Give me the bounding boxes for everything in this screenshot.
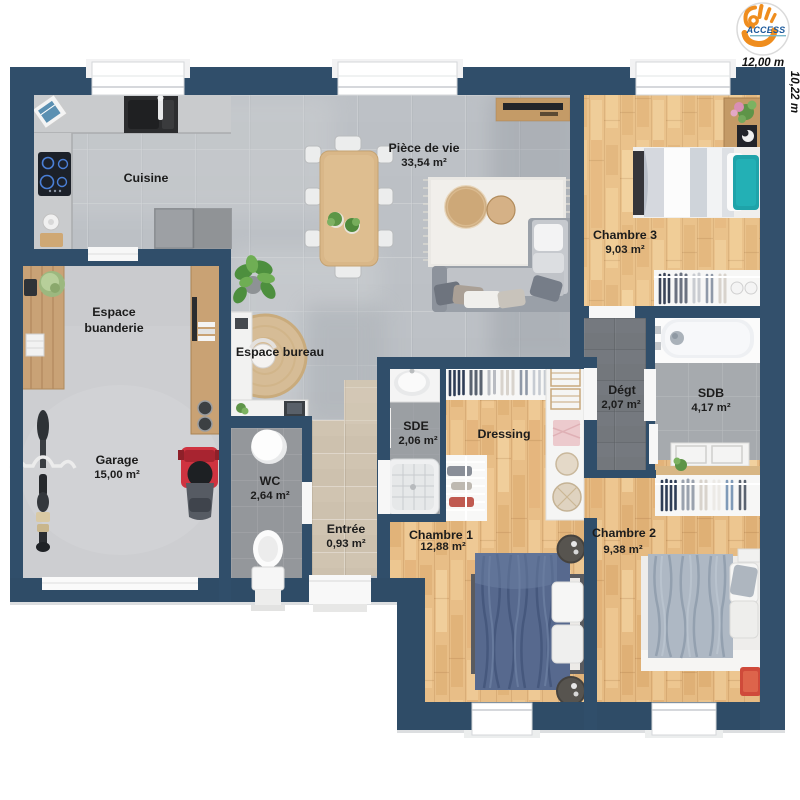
svg-text:2,06 m²: 2,06 m²: [398, 435, 437, 447]
svg-text:9,03 m²: 9,03 m²: [605, 244, 644, 256]
svg-text:Espace: Espace: [92, 305, 136, 319]
svg-text:15,00 m²: 15,00 m²: [94, 469, 140, 481]
svg-text:WC: WC: [260, 474, 281, 488]
svg-text:Chambre 2: Chambre 2: [592, 526, 656, 540]
svg-text:SDE: SDE: [403, 419, 428, 433]
svg-text:ACCESS: ACCESS: [746, 25, 786, 35]
svg-text:12,88 m²: 12,88 m²: [420, 541, 466, 553]
svg-text:Espace bureau: Espace bureau: [236, 345, 324, 359]
svg-text:buanderie: buanderie: [84, 321, 143, 335]
svg-text:Pièce de vie: Pièce de vie: [389, 141, 460, 155]
svg-text:2,07 m²: 2,07 m²: [601, 399, 640, 411]
svg-text:Garage: Garage: [96, 453, 139, 467]
svg-text:Cuisine: Cuisine: [124, 171, 169, 185]
svg-text:Entrée: Entrée: [327, 522, 366, 536]
svg-text:9,38 m²: 9,38 m²: [603, 544, 642, 556]
svg-text:Dressing: Dressing: [477, 427, 530, 441]
svg-text:2,64 m²: 2,64 m²: [250, 490, 289, 502]
svg-text:12,00 m: 12,00 m: [742, 57, 784, 69]
svg-text:Chambre 1: Chambre 1: [409, 528, 473, 542]
svg-text:Dégt: Dégt: [608, 383, 636, 397]
svg-text:33,54 m²: 33,54 m²: [401, 157, 447, 169]
svg-text:SDB: SDB: [698, 386, 724, 400]
svg-text:4,17 m²: 4,17 m²: [691, 402, 730, 414]
svg-text:Chambre 3: Chambre 3: [593, 228, 657, 242]
svg-text:0,93 m²: 0,93 m²: [326, 538, 365, 550]
svg-text:10,22 m: 10,22 m: [788, 71, 800, 113]
